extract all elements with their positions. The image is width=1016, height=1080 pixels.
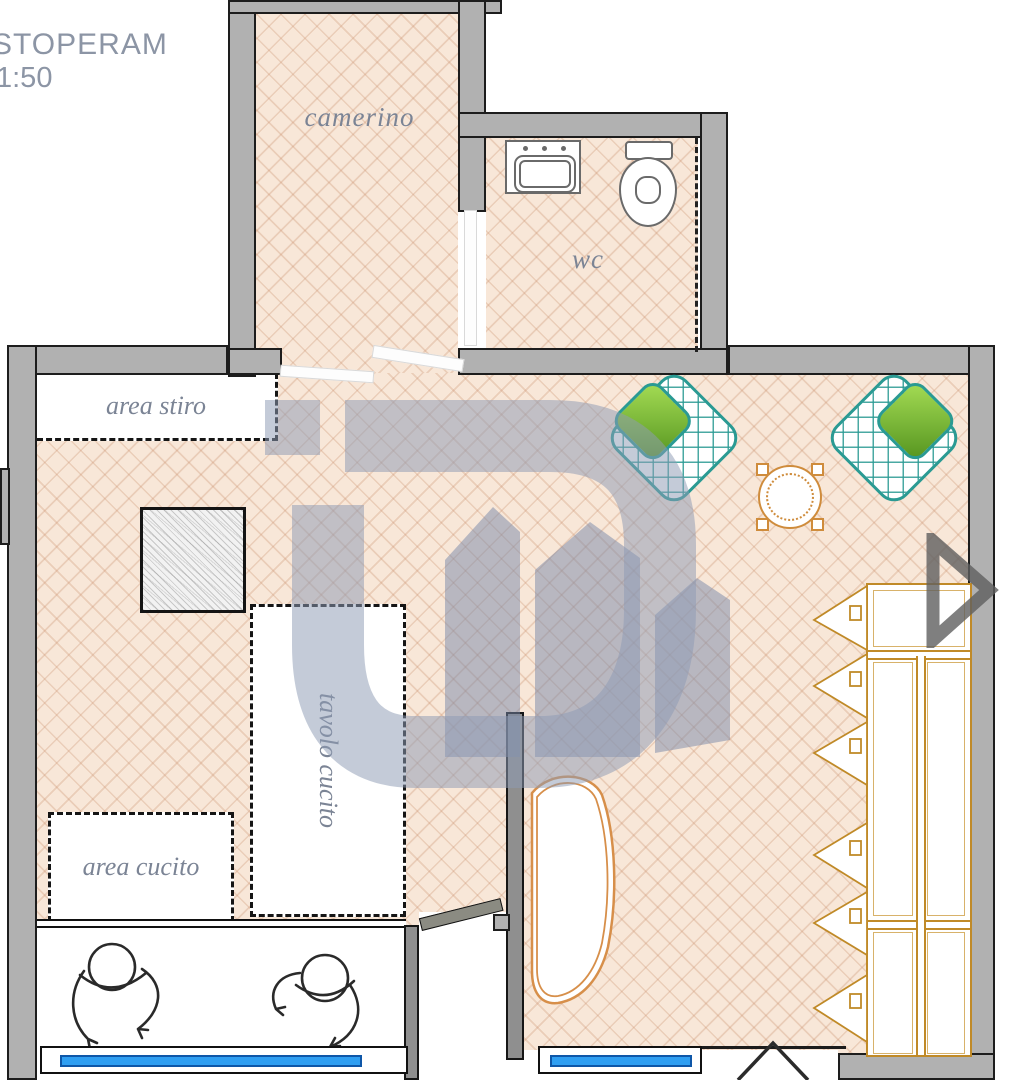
- camerino-floor: [256, 14, 458, 375]
- area-stiro-label: area stiro: [106, 391, 206, 421]
- vestibule-boundary-line: [37, 919, 406, 928]
- wall: [228, 0, 256, 377]
- wall: [7, 345, 228, 375]
- side-table-icon: [756, 463, 824, 531]
- wall: [968, 345, 995, 1080]
- sink-icon: [505, 140, 581, 194]
- wardrobe-icon: [866, 583, 972, 1057]
- wall: [728, 345, 995, 375]
- camerino-label: camerino: [272, 102, 447, 133]
- floor-plan: STOPERAM 1:50 area stiro tavolo cucito a…: [0, 0, 1016, 1080]
- zone-area-cucito: area cucito: [48, 812, 234, 922]
- entrance-arrow-icon: [728, 1038, 818, 1080]
- wc-label: wc: [548, 244, 628, 275]
- zone-tavolo-cucito: tavolo cucito: [250, 604, 406, 917]
- entry-corridor: [419, 912, 506, 1080]
- wall-pilaster: [0, 468, 10, 545]
- wall: [700, 112, 728, 352]
- wardrobe-door-swings-icon: [790, 580, 870, 1060]
- wall: [458, 348, 728, 375]
- partition-wall: [506, 712, 524, 1060]
- door-hinge-block: [493, 914, 510, 931]
- fitting-mirror-icon: [524, 765, 628, 1013]
- wall-stub: [228, 348, 282, 375]
- area-cucito-label: area cucito: [83, 852, 200, 882]
- person-figure-icon: [50, 935, 380, 1060]
- tavolo-cucito-label: tavolo cucito: [313, 693, 343, 828]
- plan-title: STOPERAM: [0, 28, 168, 62]
- wall: [458, 0, 486, 212]
- hatched-block: [140, 507, 246, 613]
- wc-dashed-wall: [695, 138, 698, 352]
- window-frame: [538, 1046, 702, 1074]
- toilet-icon: [616, 140, 680, 228]
- zone-area-stiro: area stiro: [37, 373, 278, 441]
- next-arrow-icon[interactable]: [925, 533, 1000, 648]
- door-leaf-camerino-wc: [464, 210, 477, 346]
- plan-scale: 1:50: [0, 62, 52, 95]
- window-frame: [40, 1046, 408, 1074]
- window-glass-strip: [550, 1055, 692, 1067]
- wall: [458, 112, 728, 138]
- window-glass-strip: [60, 1055, 362, 1067]
- wall: [7, 345, 37, 1080]
